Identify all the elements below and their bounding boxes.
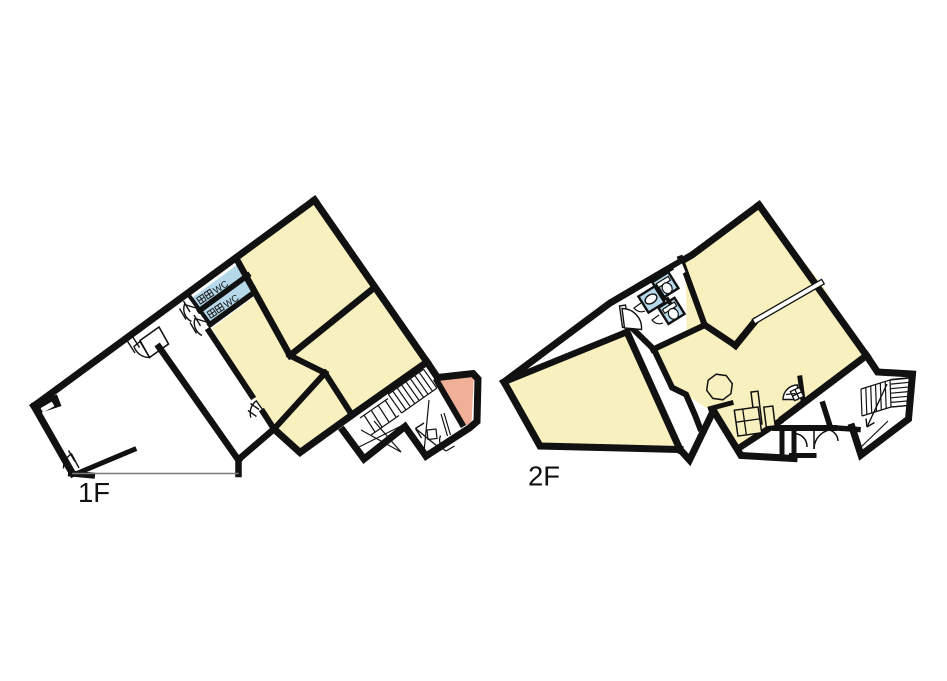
svg-text:1F: 1F bbox=[78, 477, 110, 508]
svg-text:2F: 2F bbox=[528, 461, 560, 492]
